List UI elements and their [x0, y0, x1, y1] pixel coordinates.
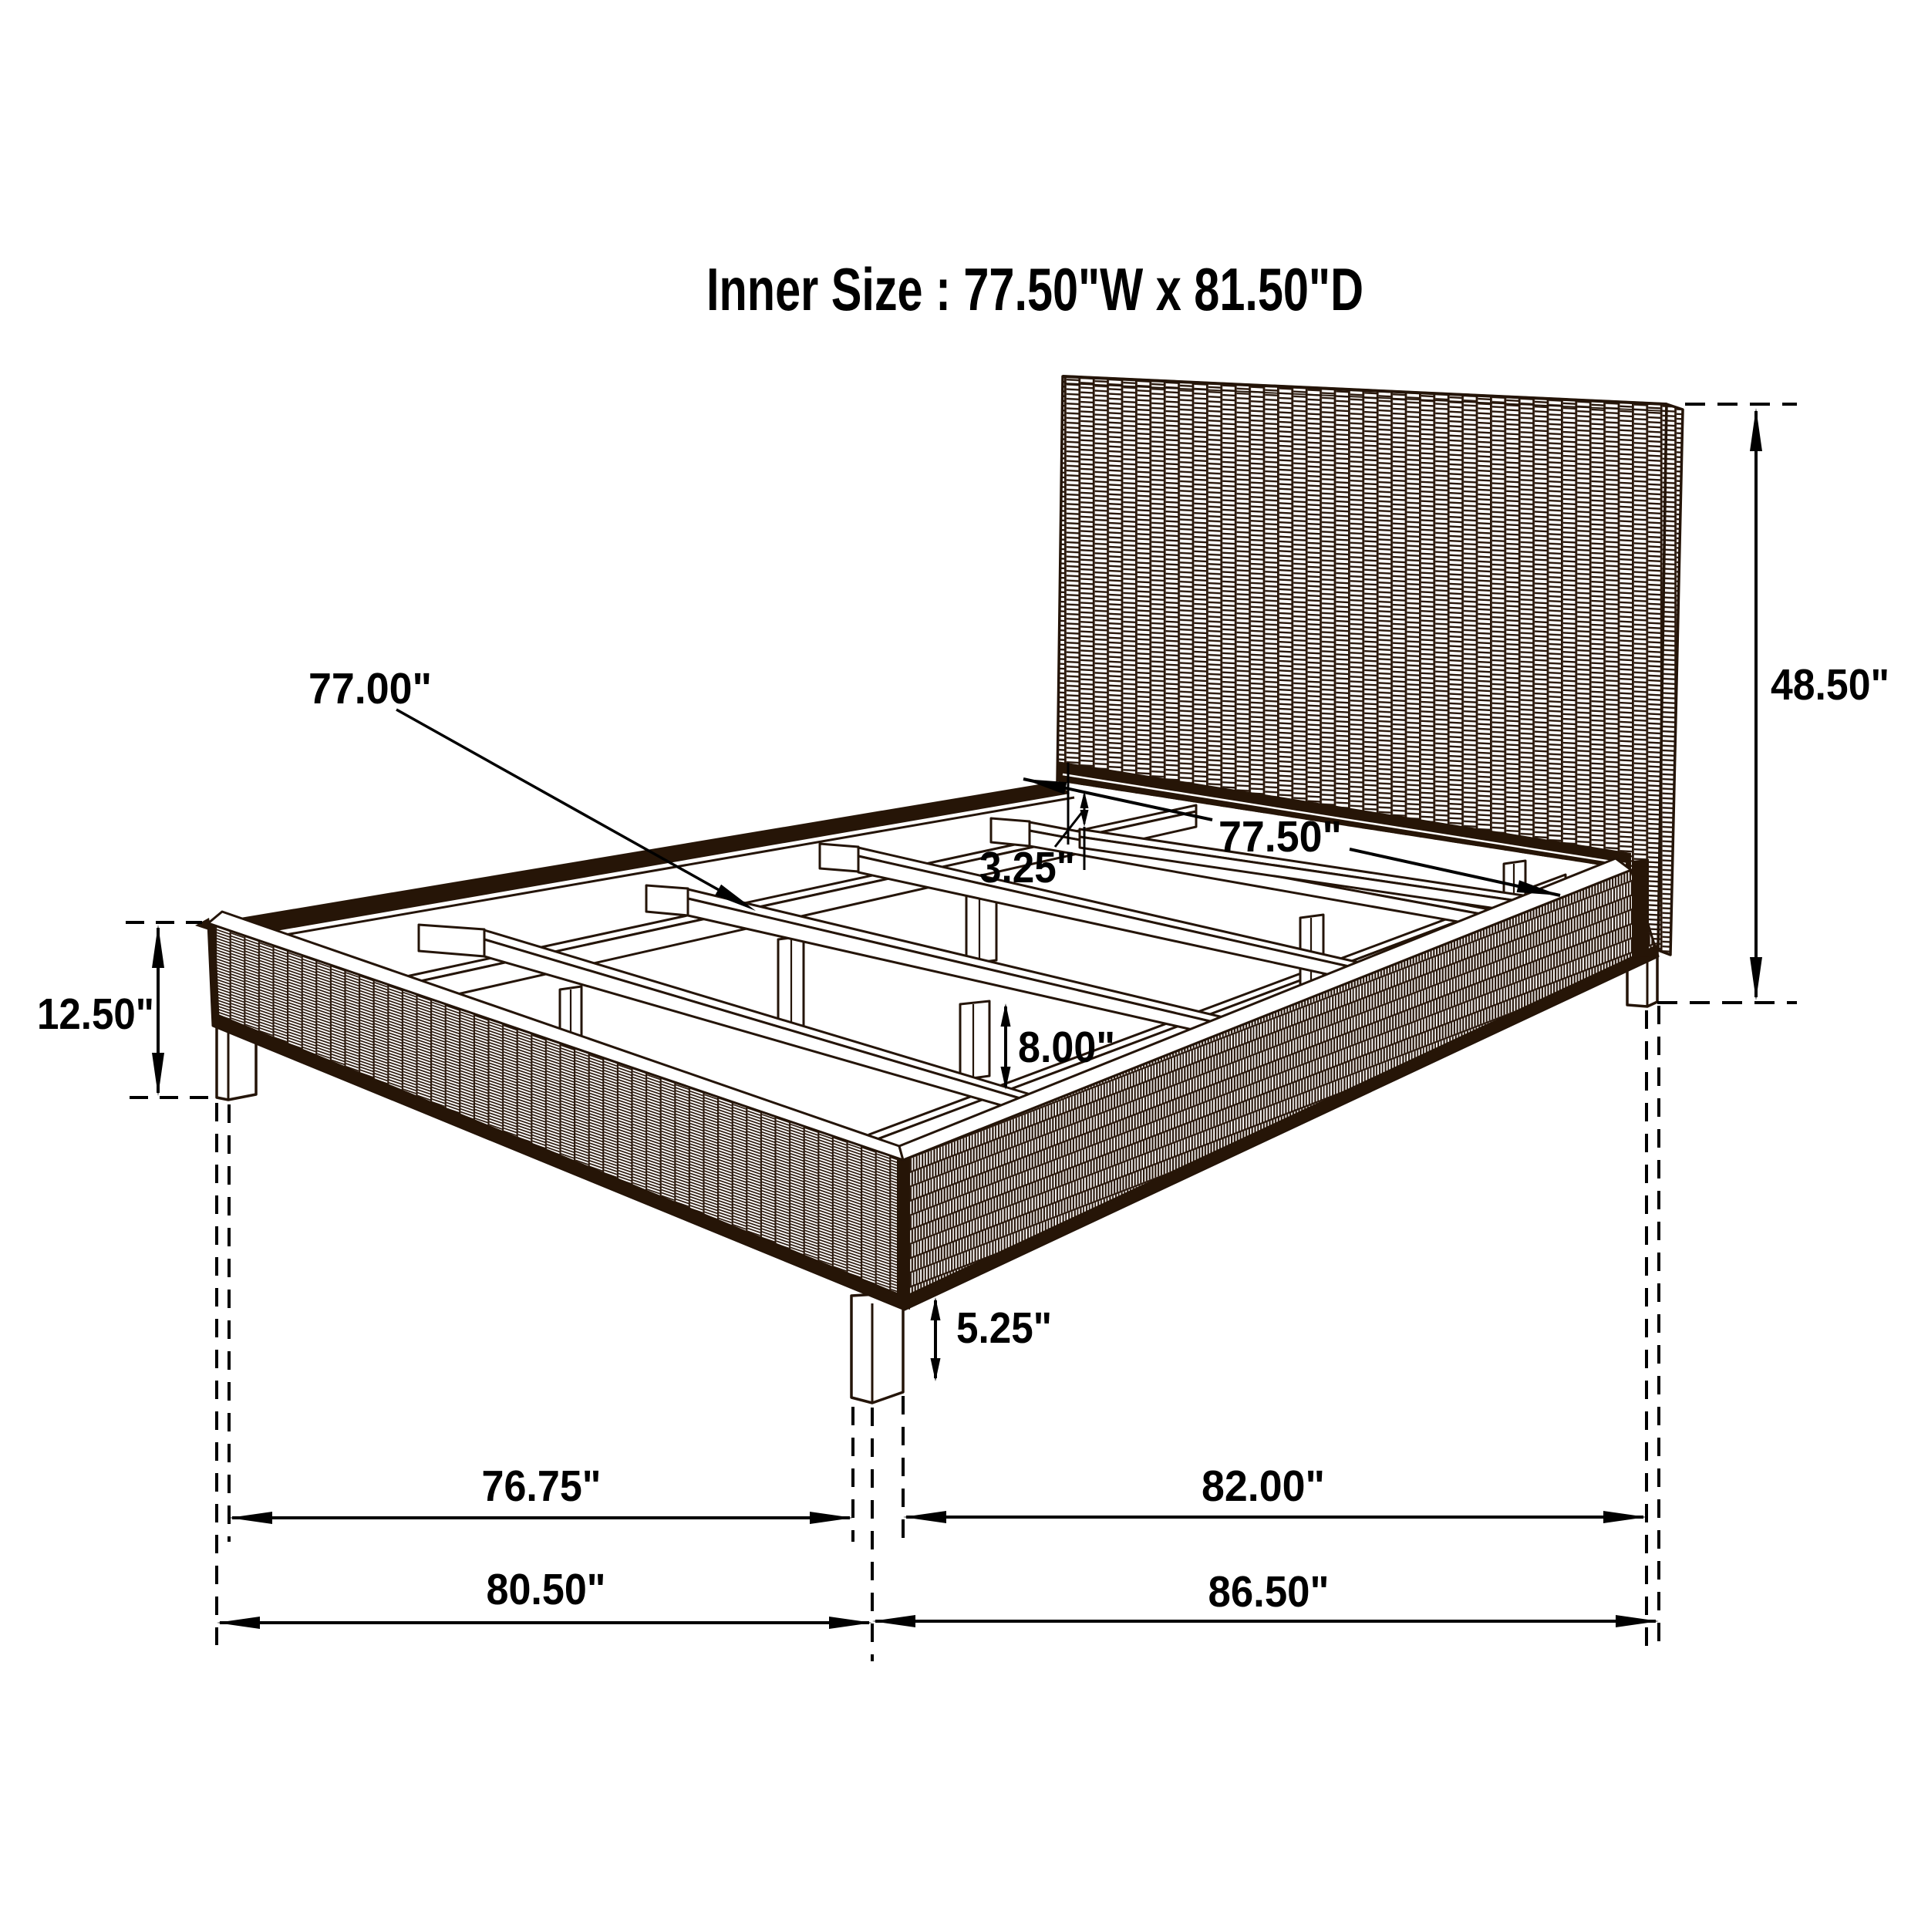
svg-text:76.75": 76.75": [482, 1462, 602, 1511]
svg-text:77.50": 77.50": [1218, 812, 1342, 861]
svg-text:12.50": 12.50": [37, 990, 154, 1039]
svg-text:86.50": 86.50": [1208, 1567, 1330, 1617]
svg-text:8.00": 8.00": [1018, 1023, 1115, 1072]
svg-text:80.50": 80.50": [487, 1565, 606, 1614]
svg-text:77.00": 77.00": [308, 664, 432, 713]
svg-text:48.50": 48.50": [1771, 660, 1889, 710]
svg-text:3.25": 3.25": [979, 843, 1075, 892]
svg-text:82.00": 82.00": [1202, 1462, 1325, 1511]
svg-text:Inner Size : 77.50"W x 81.50": Inner Size : 77.50"W x 81.50"D: [706, 255, 1363, 323]
svg-text:5.25": 5.25": [956, 1303, 1052, 1353]
